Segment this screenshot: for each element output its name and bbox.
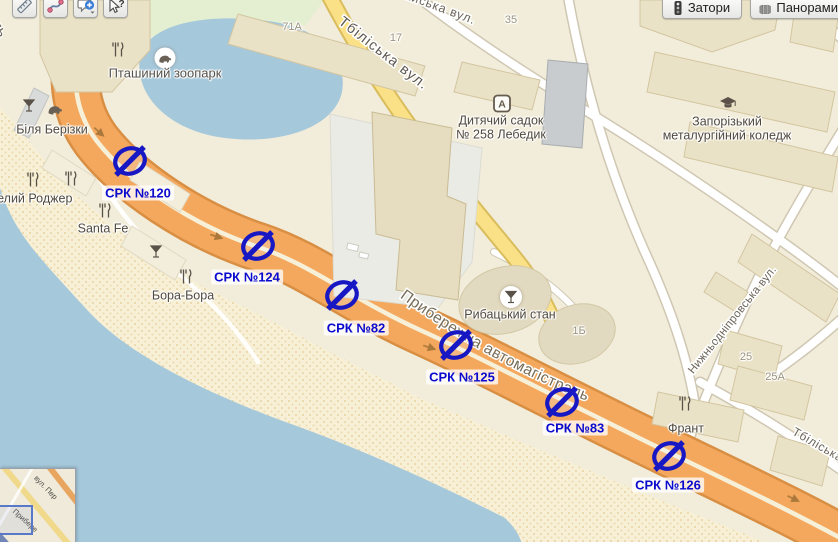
poi-label-line: Запорізький	[663, 116, 792, 130]
inspector-cursor-icon: ?	[107, 0, 124, 14]
restaurant-icon[interactable]	[177, 268, 193, 291]
bar-icon[interactable]	[22, 98, 36, 119]
srk-marker-icon	[649, 438, 689, 474]
marker-label[interactable]: СРК №125	[426, 370, 498, 385]
panoramas-icon	[759, 3, 771, 16]
traffic-light-icon	[673, 0, 683, 16]
poi-label-line: металургійний коледж	[663, 129, 792, 143]
poi-label-kindergarten[interactable]: Дитячий садок № 258 Лебедик	[456, 115, 546, 142]
poi-label-veselyi-rodzher[interactable]: Веселий Роджер	[0, 192, 72, 206]
building-number: 17	[390, 32, 402, 44]
poi-label-zoo[interactable]: Пташиний зоопарк	[109, 66, 222, 80]
srk-marker-icon	[110, 143, 150, 179]
overview-minimap[interactable]: вул. Пер Прибере	[0, 468, 76, 542]
zoo-icon[interactable]	[47, 103, 64, 121]
building-number: 25А	[765, 371, 785, 383]
marker-label[interactable]: СРК №120	[102, 186, 174, 201]
marker-label[interactable]: СРК №126	[632, 478, 704, 493]
add-placemark-button[interactable]	[73, 0, 98, 18]
svg-text:айська вул.: айська вул.	[403, 0, 478, 27]
restaurant-icon[interactable]	[676, 395, 692, 418]
poi-label-santa-fe[interactable]: Santa Fe	[78, 222, 129, 236]
poi-label-bora-bora[interactable]: Бора-Бора	[152, 289, 214, 303]
bar-icon[interactable]	[149, 244, 163, 265]
srk-marker-icon	[436, 327, 476, 363]
marker-label[interactable]: СРК №82	[324, 321, 389, 336]
ruler-icon	[16, 0, 33, 14]
ruler-tool-button[interactable]	[12, 0, 37, 18]
panoramas-button-label: Панорами	[776, 0, 838, 16]
panoramas-button[interactable]: Панорами	[750, 0, 838, 19]
restaurant-icon[interactable]	[109, 41, 125, 64]
poi-label-college[interactable]: Запорізький металургійний коледж	[663, 116, 792, 143]
street-label-top: айська вул.	[403, 0, 478, 27]
marker-label[interactable]: СРК №124	[211, 270, 283, 285]
traffic-button-label: Затори	[688, 0, 730, 16]
svg-text:?: ?	[119, 0, 125, 10]
minimap-viewport[interactable]	[0, 505, 33, 535]
restaurant-icon[interactable]	[24, 171, 40, 194]
context-help-button[interactable]: ?	[103, 0, 128, 18]
building-number: 25	[740, 351, 752, 363]
building-number: 1Б	[572, 325, 585, 337]
route-tool-button[interactable]	[43, 0, 68, 18]
bar-icon[interactable]	[500, 286, 522, 308]
srk-marker-icon	[322, 277, 362, 313]
poi-label-line: № 258 Лебедик	[456, 128, 546, 142]
map-application: Прибережна автомагістраль Тбіліська вул.…	[0, 0, 838, 542]
srk-marker-icon	[238, 228, 278, 264]
traffic-button[interactable]: Затори	[662, 0, 742, 19]
poi-label-rybatskyi-stan[interactable]: Рибацький стан	[464, 308, 555, 322]
poi-label-bilya-berizky[interactable]: Біля Берізки	[16, 123, 88, 137]
restaurant-icon[interactable]	[62, 170, 78, 193]
poi-label-frant[interactable]: Франт	[668, 422, 704, 436]
college-icon[interactable]	[719, 96, 737, 116]
add-placemark-icon	[77, 0, 95, 14]
route-icon	[47, 0, 64, 14]
building-number: 35	[505, 14, 517, 26]
srk-marker-icon	[542, 384, 582, 420]
building-number: 71А	[282, 21, 302, 33]
map-canvas[interactable]: Прибережна автомагістраль Тбіліська вул.…	[0, 0, 838, 542]
poi-label-line: Дитячий садок	[456, 115, 546, 129]
kindergarten-glyph: А	[498, 99, 506, 111]
marker-label[interactable]: СРК №83	[543, 421, 608, 436]
